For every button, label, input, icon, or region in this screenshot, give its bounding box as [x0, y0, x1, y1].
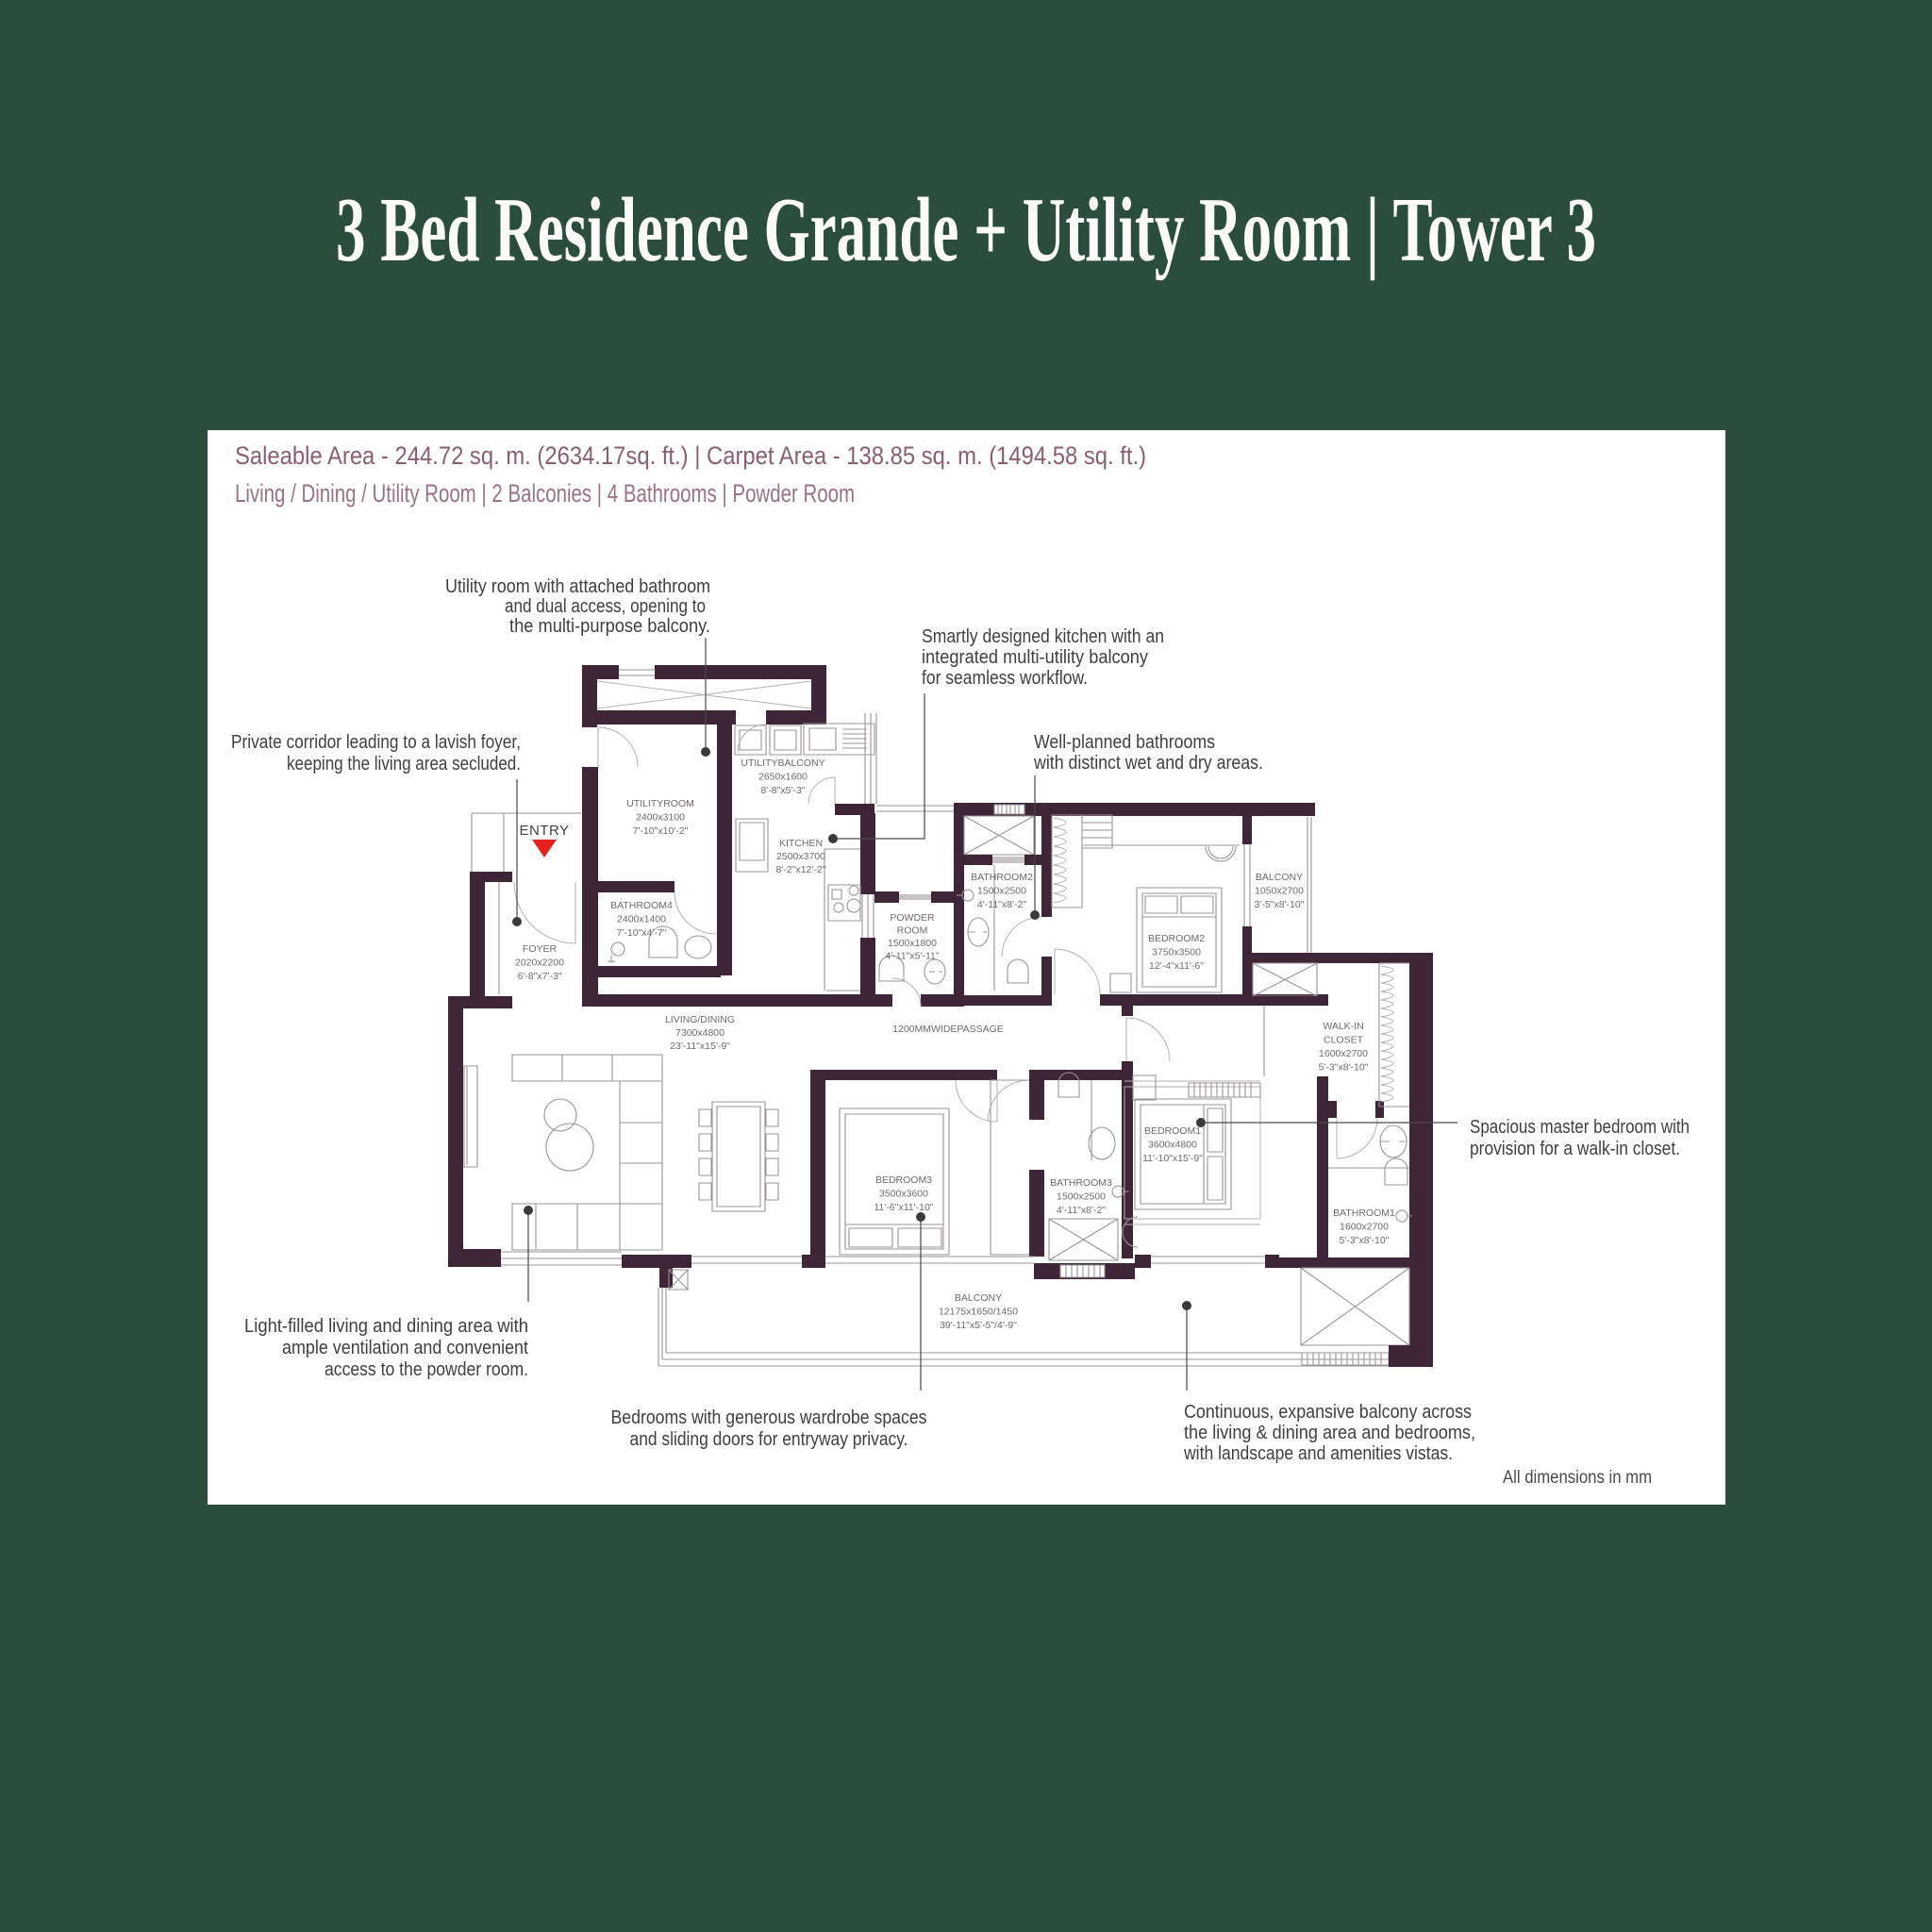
svg-text:and sliding doors for entryway: and sliding doors for entryway privacy.	[630, 1429, 908, 1450]
svg-text:BEDROOM23750x350012'-4"x11'-6": BEDROOM23750x350012'-4"x11'-6"	[1148, 933, 1205, 972]
svg-text:BATHROOM21500x25004'-11"x8'-2": BATHROOM21500x25004'-11"x8'-2"	[971, 872, 1033, 910]
svg-text:Spacious master bedroom with: Spacious master bedroom with	[1470, 1117, 1690, 1138]
svg-text:and dual access, opening to: and dual access, opening to	[505, 596, 706, 617]
svg-text:provision for a walk-in close: provision for a walk-in closet.	[1470, 1139, 1680, 1159]
svg-text:Bedrooms with generous wardrob: Bedrooms with generous wardrobe spaces	[611, 1407, 927, 1428]
svg-text:Private corridor leading to a: Private corridor leading to a lavish foy…	[231, 732, 521, 753]
svg-text:Utility room with attached bat: Utility room with attached bathroom	[445, 576, 710, 597]
svg-text:Living / Dining / Utility: Living / Dining / Utility Room | 2 Balco…	[235, 479, 855, 508]
svg-text:Continuous, expansive balcony: Continuous, expansive balcony across	[1184, 1402, 1472, 1423]
svg-text:ENTRY: ENTRY	[519, 823, 569, 839]
svg-text:the multi-purpose balcony.: the multi-purpose balcony.	[509, 616, 710, 637]
svg-text:BALCONY1050x27003'-5"x8'-10": BALCONY1050x27003'-5"x8'-10"	[1255, 872, 1305, 910]
svg-text:KITCHEN2500x37008'-2"x12'-2": KITCHEN2500x37008'-2"x12'-2"	[776, 838, 826, 875]
svg-text:BATHROOM31500x25004'-11"x8'-2": BATHROOM31500x25004'-11"x8'-2"	[1050, 1177, 1112, 1216]
svg-text:with landscape and amenities v: with landscape and amenities vistas.	[1183, 1443, 1453, 1464]
svg-text:LIVING/DINING7300x480023'-11"x: LIVING/DINING7300x480023'-11"x15'-9"	[665, 1014, 735, 1052]
svg-text:All dimensions in mm: All dimensions in mm	[1503, 1468, 1652, 1488]
svg-text:BATHROOM11600x27005'-3"x8'-10": BATHROOM11600x27005'-3"x8'-10"	[1333, 1207, 1395, 1246]
svg-text:BEDROOM33500x360011'-6"x11'-10: BEDROOM33500x360011'-6"x11'-10"	[874, 1174, 933, 1213]
svg-text:POWDERROOM1500x18004'-11"x5'-1: POWDERROOM1500x18004'-11"x5'-11"	[885, 912, 939, 962]
svg-text:ample ventilation and convenie: ample ventilation and convenient	[282, 1338, 528, 1358]
svg-text:keeping the living area seclud: keeping the living area secluded.	[287, 754, 521, 774]
svg-text:with distinct wet and dry are: with distinct wet and dry areas.	[1033, 753, 1263, 774]
svg-text:BEDROOM13600x480011'-10"x15'-9: BEDROOM13600x480011'-10"x15'-9"	[1142, 1125, 1203, 1164]
svg-text:Saleable Area - 244.72 sq.: Saleable Area - 244.72 sq. m. (2634.17sq…	[235, 441, 1146, 470]
svg-text:access to the powder room.: access to the powder room.	[325, 1359, 528, 1380]
svg-text:3 Bed Residence Grande + Utili: 3 Bed Residence Grande + Utility Room | …	[336, 179, 1596, 280]
svg-text:Light-filled living and dining: Light-filled living and dining area with	[244, 1316, 528, 1337]
svg-text:1200MMWIDEPASSAGE: 1200MMWIDEPASSAGE	[892, 1024, 1004, 1035]
svg-text:UTILITYROOM2400x31007'-10"x10': UTILITYROOM2400x31007'-10"x10'-2"	[626, 798, 694, 837]
svg-text:BATHROOM42400x14007'-10"x4'-7": BATHROOM42400x14007'-10"x4'-7"	[610, 900, 673, 939]
svg-text:the living & dining area and b: the living & dining area and bedrooms,	[1184, 1423, 1475, 1443]
svg-text:for seamless workflow.: for seamless workflow.	[922, 668, 1088, 689]
svg-text:Smartly designed kitchen with: Smartly designed kitchen with an	[922, 626, 1164, 647]
svg-text:integrated multi-utility balc: integrated multi-utility balcony	[922, 647, 1148, 668]
svg-text:Well-planned bathrooms: Well-planned bathrooms	[1034, 732, 1215, 753]
